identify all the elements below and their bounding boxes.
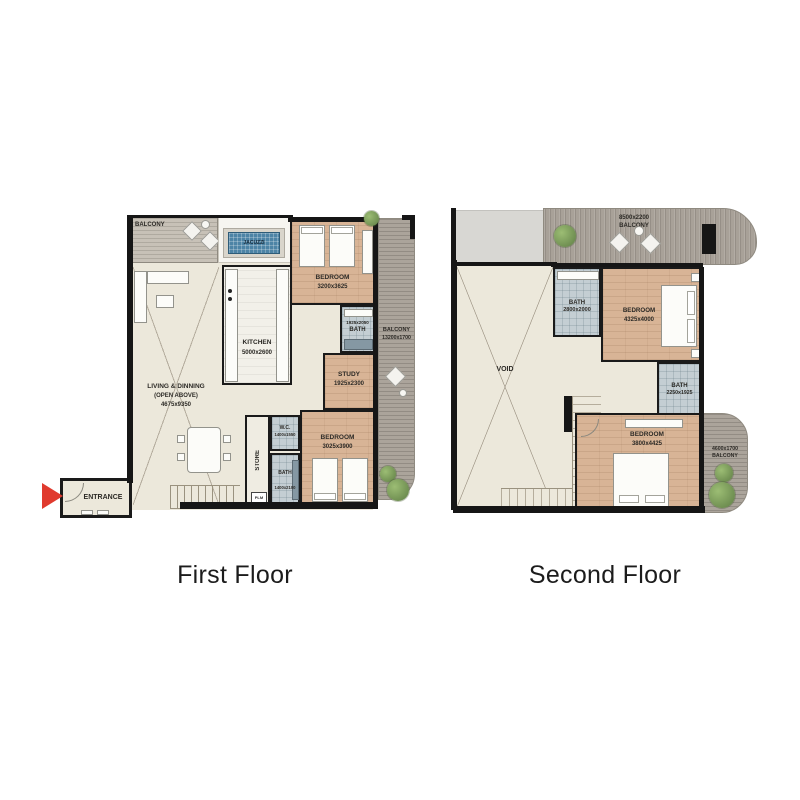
bathtub: [344, 339, 373, 350]
ff-balcony-right-dims: 13200x1700: [379, 335, 414, 342]
stove-burner: [228, 297, 232, 301]
door-arc: [65, 483, 84, 502]
plant: [709, 482, 735, 508]
dining-table: [187, 427, 221, 473]
kitchen-counter-right: [276, 269, 289, 382]
ff-bedroom-2: BEDROOM 3025x3900: [300, 410, 375, 505]
second-floor-title: Second Floor: [445, 561, 765, 590]
ff-bath-1-dims: 1925x2050: [342, 320, 373, 326]
ff-living-dims: 4675x9350: [130, 401, 222, 409]
bed-pillow: [301, 227, 323, 234]
lounge-chair: [182, 221, 202, 241]
sf-bedroom-bottom: BEDROOM 3800x4425: [575, 413, 702, 510]
ff-bedroom-2-dims: 3025x3900: [302, 443, 373, 451]
sf-bath-mid: BATH 2250x1925: [657, 362, 702, 415]
plant: [364, 211, 379, 226]
dresser: [625, 419, 683, 428]
door-arc: [581, 419, 599, 437]
dining-chair: [177, 435, 185, 443]
first-floor-title: First Floor: [55, 561, 415, 590]
wall: [451, 262, 557, 266]
wall: [373, 220, 378, 506]
sf-bath-mid-dims: 2250x1925: [659, 390, 700, 397]
lounge-chair: [200, 231, 220, 251]
bed-pillow: [687, 319, 695, 343]
wall: [127, 215, 133, 483]
sf-bath-top-name: BATH: [555, 299, 599, 307]
balcony-table: [634, 226, 644, 236]
ff-wc-dims: 1400x1550: [272, 432, 298, 438]
kitchen-counter-left: [225, 269, 238, 382]
bed-pillow: [645, 495, 665, 503]
coffee-table: [156, 295, 174, 308]
ff-bedroom-2-name: BEDROOM: [302, 434, 373, 443]
ff-bedroom-1-name: BEDROOM: [292, 274, 373, 283]
wall: [127, 215, 293, 218]
second-floor-plan: 8500x2200 BALCONY VOID BATH 2800x2000: [445, 200, 765, 535]
bed-pillow: [619, 495, 639, 503]
ff-bedroom-1-dims: 3200x3625: [292, 283, 373, 291]
wall: [451, 208, 456, 262]
sf-balcony-top-dims: 8500x2200: [599, 214, 669, 222]
plant: [387, 479, 409, 501]
ff-bath-2: BATH 1400x2100: [270, 453, 300, 505]
dining-chair: [223, 435, 231, 443]
wall: [180, 502, 378, 509]
bed-pillow: [687, 291, 695, 315]
wall: [699, 267, 704, 513]
floorplan-page: BALCONY JACUZZI KITCHEN 5000x2600: [0, 0, 800, 800]
sf-bedroom-top: BEDROOM 4325x4000: [601, 267, 702, 362]
ff-bath-1: 1925x2050 BATH: [340, 305, 375, 353]
sf-bedroom-bottom-dims: 3800x4425: [607, 440, 687, 448]
lounge-chair: [609, 232, 630, 253]
plant: [554, 225, 576, 247]
bathtub: [292, 460, 299, 500]
wall: [451, 260, 457, 510]
jacuzzi-label: JACUZZI: [243, 240, 264, 246]
wall: [564, 396, 572, 432]
void-cross-marks: [457, 267, 553, 507]
sf-bedroom-top-name: BEDROOM: [609, 307, 669, 315]
wardrobe: [362, 230, 373, 274]
bed-pillow: [344, 493, 366, 500]
sofa: [134, 271, 147, 323]
sf-bath-top: BATH 2800x2000: [553, 267, 601, 337]
sf-void-label: VOID: [455, 365, 555, 374]
ff-study-dims: 1925x2300: [325, 380, 373, 388]
ff-bath-1-name: BATH: [342, 326, 373, 334]
sf-bath-top-dims: 2800x2000: [555, 307, 599, 314]
jacuzzi: JACUZZI: [228, 232, 280, 254]
balcony-table: [399, 389, 407, 397]
plm-label: PLM: [255, 495, 263, 500]
ff-balcony-right: BALCONY 13200x1700: [378, 218, 415, 500]
sofa: [147, 271, 189, 284]
ff-kitchen: KITCHEN 5000x2600: [222, 265, 292, 385]
ff-entrance-label: ENTRANCE: [77, 493, 129, 502]
stove-burner: [228, 289, 232, 293]
ff-balcony-right-name: BALCONY: [379, 327, 414, 334]
sf-balcony-right: 4600x1700 BALCONY: [702, 413, 748, 513]
ff-wc: W.C. 1400x1550: [270, 415, 300, 451]
wall: [453, 506, 705, 513]
sf-bedroom-bottom-name: BEDROOM: [607, 431, 687, 440]
sf-balcony-right-name: BALCONY: [703, 453, 747, 460]
first-floor-plan: BALCONY JACUZZI KITCHEN 5000x2600: [55, 195, 415, 535]
balcony-column: [702, 224, 716, 254]
shoe-cabinet: [81, 510, 93, 515]
entrance-arrow-icon: [42, 483, 63, 509]
wall: [551, 263, 703, 267]
sf-balcony-top: 8500x2200 BALCONY: [543, 208, 757, 265]
bath-vanity: [344, 309, 373, 317]
ff-study-name: STUDY: [325, 371, 373, 380]
ff-balcony-top: BALCONY: [130, 217, 218, 263]
bath-vanity: [557, 271, 599, 280]
bed-pillow: [314, 493, 336, 500]
wall: [410, 215, 415, 239]
ff-entrance: ENTRANCE: [60, 478, 132, 518]
sf-bath-mid-name: BATH: [659, 382, 700, 390]
lounge-chair: [385, 366, 406, 387]
dining-chair: [223, 453, 231, 461]
sf-balcony-right-dims: 4600x1700: [703, 446, 747, 453]
lounge-chair: [640, 233, 661, 254]
ff-living-sub: (OPEN ABOVE): [130, 392, 222, 400]
balcony-table: [201, 220, 210, 229]
ff-living-name: LIVING & DINNING: [130, 383, 222, 392]
sf-bedroom-top-dims: 4325x4000: [609, 316, 669, 324]
plant: [715, 464, 733, 482]
ff-bedroom-1: BEDROOM 3200x3625: [290, 220, 375, 305]
ff-balcony-top-label: BALCONY: [135, 221, 165, 229]
ff-wc-name: W.C.: [272, 425, 298, 432]
ff-study: STUDY 1925x2300: [323, 353, 375, 410]
bed-pillow: [331, 227, 353, 234]
ff-store-name: STORE: [255, 450, 261, 471]
dining-chair: [177, 453, 185, 461]
shoe-cabinet: [97, 510, 109, 515]
